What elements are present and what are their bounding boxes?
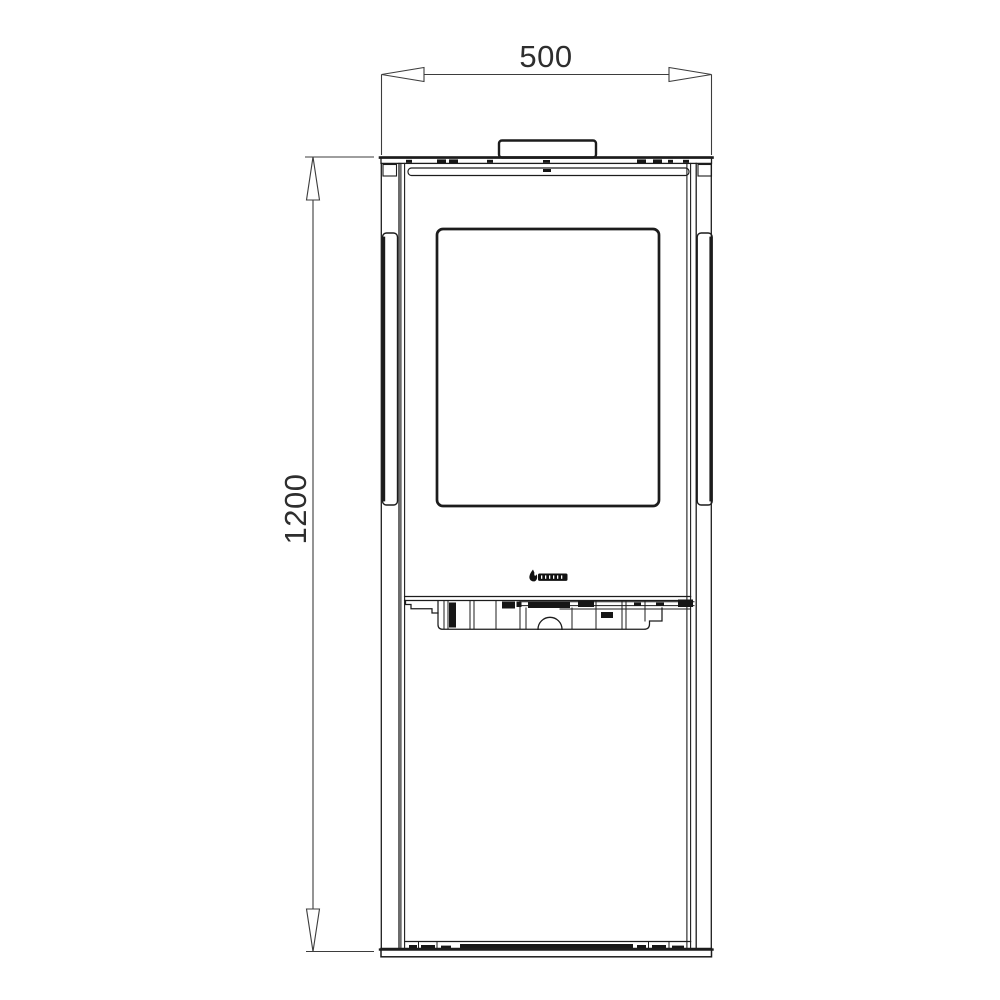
latch-handle bbox=[538, 617, 562, 629]
arrow-down-icon bbox=[307, 909, 320, 952]
right-side-column bbox=[696, 163, 712, 948]
right-column-spacer bbox=[698, 165, 712, 177]
top-vent-band bbox=[408, 168, 689, 176]
height-dimension bbox=[305, 157, 374, 952]
arrow-right-icon bbox=[669, 68, 712, 82]
door-bottom-edge bbox=[405, 597, 691, 601]
stove-body bbox=[380, 141, 713, 957]
left-column-spacer bbox=[383, 165, 397, 177]
logo-wordmark bbox=[538, 574, 568, 581]
front-face-edges bbox=[401, 163, 691, 948]
door-window bbox=[437, 229, 659, 506]
height-dimension-value: 1200 bbox=[278, 474, 313, 545]
air-control-assembly bbox=[406, 600, 695, 630]
left-step-bracket bbox=[406, 601, 439, 614]
brand-logo bbox=[529, 570, 567, 582]
width-dimension bbox=[382, 68, 712, 156]
top-vent-center-mark bbox=[543, 169, 551, 172]
flame-icon bbox=[529, 570, 537, 582]
base-plate bbox=[380, 949, 713, 957]
technical-drawing-canvas: 500 1200 bbox=[0, 0, 1000, 1000]
arrow-up-icon bbox=[307, 157, 320, 200]
width-dimension-value: 500 bbox=[519, 39, 572, 74]
control-dark-blocks bbox=[449, 600, 693, 628]
left-side-column bbox=[381, 163, 399, 948]
stove-front-elevation-drawing: 500 1200 bbox=[0, 0, 1000, 1000]
top-plate-screw-marks bbox=[406, 159, 689, 163]
arrow-left-icon bbox=[382, 68, 425, 82]
flue-collar bbox=[499, 141, 596, 158]
